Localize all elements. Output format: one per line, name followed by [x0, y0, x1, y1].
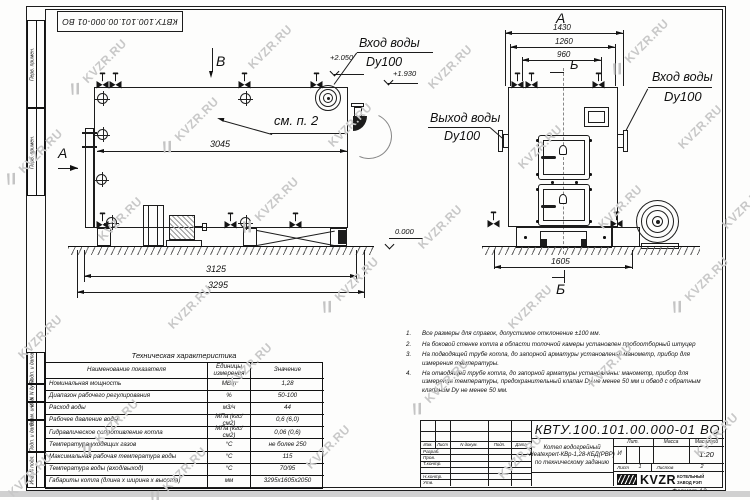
table-cell: МПа (кгс/см2)	[208, 427, 251, 439]
rect	[493, 213, 494, 220]
titleblock-header: Подп.	[488, 441, 511, 448]
table-cell: Температура воды (вход/выход)	[46, 464, 208, 476]
sheet-value: 1	[635, 464, 645, 471]
company-name-line: ЗАВОД РЭП	[677, 480, 723, 485]
drawing-sheet: КВТУ.100.101.00.000-01 ВО	[0, 0, 750, 500]
arrowhead-icon	[594, 58, 601, 62]
arrowhead-icon	[494, 265, 501, 269]
rect	[115, 74, 116, 81]
boiler-body-side-view	[94, 87, 348, 228]
drawing-line	[505, 33, 623, 34]
titleblock-header: Изм.	[421, 441, 435, 448]
scale-label: Масштаб	[689, 438, 724, 446]
table-cell: Диапазон рабочего регулирования	[46, 391, 208, 403]
arrowhead-icon	[350, 274, 357, 278]
path	[488, 220, 500, 228]
titleblock-line	[639, 446, 640, 463]
drawing-line	[270, 133, 347, 134]
inlet-dn-side: Dу100	[366, 56, 402, 69]
frame-sidebar-box: Взам. инв. N	[27, 402, 45, 420]
bolt-dot	[589, 220, 592, 223]
valve-icon	[238, 72, 251, 89]
frame-sidebar-box: Инв. N подл.	[27, 452, 45, 488]
drawing-line	[494, 267, 632, 268]
target-mark-icon	[96, 174, 107, 185]
arrowhead-icon	[505, 31, 512, 35]
top-stamp-number: КВТУ.100.101.00.000-01 ВО	[62, 17, 178, 27]
dim-1605-label: 1605	[551, 257, 570, 266]
titleblock-line	[531, 472, 613, 473]
frame-sidebar-box: Перв. примен.	[27, 20, 45, 108]
drawing-line	[522, 60, 601, 61]
svg	[525, 72, 538, 89]
door-lever	[541, 156, 556, 159]
inlet-flange-front	[623, 130, 628, 152]
titleblock-role-label: Разраб.	[422, 448, 451, 454]
ash-opening	[540, 231, 587, 247]
mass-label: Масса	[653, 438, 689, 446]
arrowhead-icon	[358, 290, 365, 294]
table-cell: °С	[208, 439, 251, 451]
valve-icon	[610, 211, 623, 228]
titleblock-header: N докум.	[450, 441, 488, 448]
svg	[592, 72, 605, 89]
arrowhead-icon	[522, 58, 529, 62]
door-lever	[541, 205, 556, 208]
dim-1430-label: 1430	[553, 24, 571, 32]
dim-3045-label: 3045	[210, 140, 230, 149]
table-cell: МВт	[208, 379, 251, 391]
notes-list: Все размеры для справок, допустимое откл…	[402, 330, 720, 397]
path	[225, 221, 237, 229]
valve-icon	[96, 72, 109, 89]
path	[593, 81, 605, 89]
drawing-line	[157, 205, 158, 246]
drawing-line	[648, 87, 712, 88]
drawing-line	[212, 48, 213, 72]
sheets-value: 2	[697, 464, 707, 471]
tech-characteristics: Техническая характеристика Наименование …	[45, 351, 323, 489]
svg	[289, 212, 302, 229]
svg	[224, 212, 237, 229]
table-header-cell: Единицы измерения	[208, 363, 251, 379]
path	[239, 81, 251, 89]
arrowhead-icon	[70, 165, 78, 171]
titleblock-line	[651, 463, 652, 471]
drawing-line	[615, 44, 616, 86]
rect	[102, 214, 103, 221]
table-cell: 1,28	[251, 379, 324, 391]
valve-icon	[487, 211, 500, 228]
drawing-line	[195, 226, 203, 228]
bolt-dot	[603, 236, 606, 239]
rect	[517, 74, 518, 81]
drawing-line	[564, 270, 565, 283]
tech-table: Наименование показателяЕдиницы измерения…	[45, 362, 323, 489]
rect	[316, 74, 317, 81]
scale-value: 1:20	[689, 447, 724, 462]
table-cell: Температура уходящих газов	[46, 439, 208, 451]
bolt-dot	[536, 173, 539, 176]
path	[611, 220, 623, 228]
drawing-line	[510, 47, 615, 48]
company-logo-icon	[617, 474, 637, 485]
bolt-dot	[589, 139, 592, 142]
section-label-a: А	[58, 146, 67, 160]
fan-duct	[612, 227, 640, 247]
drawing-line	[148, 205, 149, 246]
svg	[238, 72, 251, 89]
inlet-label-side: Вход воды	[359, 37, 420, 50]
svg	[511, 72, 524, 89]
bolt-dot	[536, 220, 539, 223]
outlet-label-front: Выход воды	[430, 112, 500, 125]
svg	[96, 72, 109, 89]
titleblock-role-label: Т.контр.	[422, 461, 451, 467]
path	[526, 81, 538, 89]
drawing-line	[84, 276, 357, 277]
table-cell: 115	[251, 452, 324, 464]
sidebar-label: Подп. и дата	[28, 421, 37, 451]
table-header-cell: Значение	[251, 363, 324, 379]
table-cell: Максимальная рабочая температура воды	[46, 452, 208, 464]
support-foot	[97, 228, 111, 246]
arrowhead-icon	[97, 149, 104, 153]
table-header-cell: Наименование показателя	[46, 363, 208, 379]
section-label-b-bottom: Б	[556, 282, 565, 296]
drawing-line	[357, 52, 433, 53]
valve-icon	[592, 72, 605, 89]
arrowhead-icon	[510, 45, 517, 49]
svg	[109, 72, 122, 89]
sidebar-label: Инв. N подл.	[28, 453, 37, 487]
svg	[610, 211, 623, 228]
note-item: На отводящей трубе котла, до запорной ар…	[402, 370, 720, 395]
table-cell: 0,06 (0,6)	[251, 427, 324, 439]
table-title: Техническая характеристика	[45, 351, 323, 362]
target-mark-icon	[106, 217, 117, 228]
company-name: КОТЕЛЬНЫЙЗАВОД РЭП	[677, 473, 723, 486]
bolt-dot	[589, 188, 592, 191]
valve-icon	[109, 72, 122, 89]
table-cell: не более 250	[251, 439, 324, 451]
watermark-logo-icon	[2, 168, 23, 189]
drawing-line	[388, 83, 418, 84]
note-item: На боковой стенке котла в области топочн…	[402, 341, 720, 349]
target-mark-icon	[97, 93, 108, 104]
table-cell: Гидравлическое сопротивление котла	[46, 427, 208, 439]
target-mark-icon	[97, 129, 108, 140]
table-cell: 44	[251, 403, 324, 415]
svg	[487, 211, 500, 228]
titleblock-role-label: Пров.	[422, 454, 451, 460]
product-name-line: Котел водогрейный	[543, 445, 600, 451]
top-stamp-box: КВТУ.100.101.00.000-01 ВО	[57, 11, 183, 32]
dim-3295-label: 3295	[208, 281, 228, 290]
product-name-line: по техническому заданию	[535, 460, 609, 466]
valve-icon	[289, 212, 302, 229]
titleblock-header: Дата	[511, 441, 531, 448]
table-cell: мм	[208, 476, 251, 488]
outlet-dn-front: Dу100	[444, 130, 480, 143]
lit-label: Лит.	[613, 438, 653, 446]
table-cell: 3295х1605х2050	[251, 476, 324, 488]
path	[311, 81, 323, 89]
svg	[310, 72, 323, 89]
path	[110, 81, 122, 89]
company-logo-text: KVZR	[639, 472, 677, 487]
table-cell: 0,6 (6,0)	[251, 415, 324, 427]
inlet-dn-front: Dу100	[664, 90, 702, 103]
table-cell: 50-100	[251, 391, 324, 403]
bolt-dot	[575, 181, 578, 184]
lit-value: И	[613, 447, 626, 461]
frame-sidebar-box: Перв. примен.	[27, 108, 45, 196]
b1	[503, 134, 509, 148]
callout-see-p2: см. п. 2	[274, 114, 318, 127]
arrowhead-icon	[77, 290, 84, 294]
inlet-label-front: Вход воды	[652, 71, 713, 84]
b1	[588, 111, 605, 123]
rect	[531, 74, 532, 81]
note-item: Все размеры для справок, допустимое откл…	[402, 330, 720, 338]
titleblock-header: Лист	[435, 441, 450, 448]
table-cell: 70/95	[251, 464, 324, 476]
rect	[616, 213, 617, 220]
titleblock-role-label: Утв.	[422, 479, 451, 485]
path	[512, 81, 524, 89]
target-mark-icon	[240, 217, 251, 228]
sidebar-label: Взам. инв. N	[28, 403, 37, 419]
door-handle-icon	[559, 145, 567, 155]
arrowhead-icon	[608, 45, 615, 49]
drawing-line	[97, 151, 347, 152]
elevation-ground-label: 0.000	[395, 228, 414, 236]
valve-icon	[310, 72, 323, 89]
drawing-line	[505, 30, 506, 86]
drawing-line	[623, 30, 624, 86]
ln	[338, 230, 346, 244]
arrowhead-icon	[84, 274, 91, 278]
table-cell: °С	[208, 452, 251, 464]
arrowhead-icon	[340, 149, 347, 153]
dim-1260-label: 1260	[555, 38, 573, 46]
motor	[169, 215, 195, 240]
document-number: КВТУ.100.101.00.000-01 ВО	[533, 422, 722, 437]
table-cell: Рабочее давление воды	[46, 415, 208, 427]
drawing-line	[632, 250, 633, 269]
bolt-dot	[589, 173, 592, 176]
side-pipe	[85, 128, 94, 228]
arrowhead-icon	[616, 31, 623, 35]
valve-icon	[525, 72, 538, 89]
drawing-line	[82, 146, 97, 148]
table-cell: Расход воды	[46, 403, 208, 415]
sidebar-label: Перв. примен.	[28, 109, 37, 195]
sheet-label: Лист	[615, 464, 631, 471]
product-name-line: Heatexpert-КВр-1,28-КБД(РВР)	[529, 452, 614, 458]
titleblock-line	[421, 431, 531, 432]
dim-960-label: 960	[557, 51, 570, 59]
company-name-line: КОТЕЛЬНЫЙ	[677, 474, 723, 479]
title-block: Изм.ЛистN докум.Подп.ДатаРазраб.Пров.Т.к…	[420, 420, 723, 488]
target-mark-icon	[240, 93, 251, 104]
door-handle-icon	[559, 194, 567, 204]
support-foot	[243, 228, 257, 246]
sidebar-label: Перв. примен.	[28, 21, 37, 107]
rect	[102, 74, 103, 81]
bolt-dot	[524, 236, 527, 239]
elevation-outlet-label: +1.930	[393, 70, 416, 78]
bolt-dot	[536, 139, 539, 142]
drawing-line	[550, 72, 564, 73]
note-item: На подводящей трубе котла, до запорной а…	[402, 351, 720, 367]
path	[290, 221, 302, 229]
fan-housing-side	[143, 205, 164, 246]
rect	[295, 214, 296, 221]
arrowhead-icon	[625, 265, 632, 269]
bolt-dot	[536, 188, 539, 191]
drawing-line	[334, 74, 364, 75]
rect	[230, 214, 231, 221]
valve-icon	[224, 212, 237, 229]
product-name: Котел водогрейныйHeatexpert-КВр-1,28-КБД…	[531, 439, 613, 471]
table-cell: °С	[208, 464, 251, 476]
titleblock-role-label	[422, 467, 451, 473]
dim-3125-label: 3125	[206, 265, 226, 274]
table-cell: %	[208, 391, 251, 403]
page-edge-strip	[0, 491, 750, 497]
bolt-dot	[551, 181, 554, 184]
table-cell: Габариты котла (длина х ширина х высота)	[46, 476, 208, 488]
path	[97, 81, 109, 89]
ln	[656, 220, 660, 224]
rect	[598, 74, 599, 81]
ground-hatch	[482, 246, 700, 255]
ln	[327, 97, 330, 100]
drawing-line	[428, 127, 490, 128]
arrowhead-icon	[209, 71, 213, 78]
titleblock-role-label: Н.контр.	[422, 473, 451, 479]
drawing-line	[77, 292, 365, 293]
table-cell: Номинальная мощность	[46, 379, 208, 391]
rect	[244, 74, 245, 81]
sheets-label: Листов	[654, 464, 676, 471]
valve-icon	[511, 72, 524, 89]
titleblock-line	[626, 446, 627, 463]
drawing-line	[389, 238, 423, 239]
frame-sidebar-box: Подп. и дата	[27, 420, 45, 452]
ground-hatch	[68, 246, 374, 255]
view-label-v: В	[216, 54, 225, 68]
